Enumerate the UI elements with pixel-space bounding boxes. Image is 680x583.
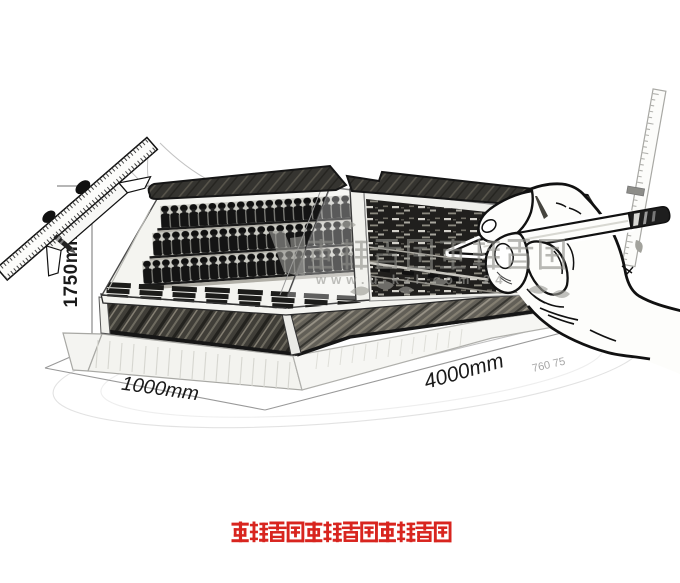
- svg-text:www.u-kzl.com 24: www.u-kzl.com 24: [315, 272, 508, 287]
